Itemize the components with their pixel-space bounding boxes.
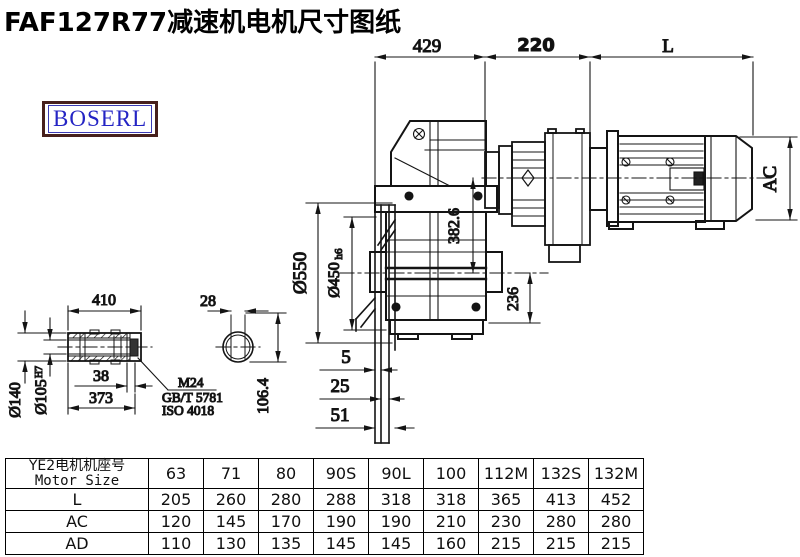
dim-5-label: 5 <box>341 347 351 368</box>
dim-1064-label: 106.4 <box>255 378 272 414</box>
dim-236-label: 236 <box>505 287 522 311</box>
dim-ac: AC <box>740 137 797 220</box>
gearbox-details <box>386 121 486 320</box>
dim-140-label: Ø140 <box>7 382 24 418</box>
row-label-AC: AC <box>6 511 149 533</box>
col-132S: 132S <box>534 459 589 489</box>
dim-429: 429 <box>413 36 442 57</box>
dim-offsets: 5 25 51 <box>316 347 414 428</box>
dim-373-label: 373 <box>89 390 113 407</box>
table-header-motor-size: YE2电机机座号 Motor Size <box>6 459 149 489</box>
centerlines <box>58 178 772 347</box>
table-row-AD: AD 110 130 135 145 145 160 215 215 215 <box>6 533 644 555</box>
table-row-L: L 205 260 280 288 318 318 365 413 452 <box>6 489 644 511</box>
col-90L: 90L <box>369 459 424 489</box>
dim-ac-label: AC <box>760 166 781 192</box>
dim-105-tol: H7 <box>34 366 45 378</box>
col-112M: 112M <box>479 459 534 489</box>
dim-450-tol: h6 <box>333 248 345 260</box>
dim-382-label: 382.6 <box>446 208 463 244</box>
dim-220: 220 <box>517 35 555 56</box>
dim-450-label: Ø450 <box>326 262 343 298</box>
row-label-AD: AD <box>6 533 149 555</box>
dim-38-label: 38 <box>93 368 109 385</box>
dim-51-label: 51 <box>331 405 350 426</box>
dim-L: L <box>662 36 674 57</box>
col-63: 63 <box>149 459 204 489</box>
flange-plate <box>356 205 395 443</box>
row-label-L: L <box>6 489 149 511</box>
col-100: 100 <box>424 459 479 489</box>
col-80: 80 <box>259 459 314 489</box>
col-71: 71 <box>204 459 259 489</box>
drawing-page: FAF127R77减速机电机尺寸图纸 BOSERL 42 <box>0 0 800 557</box>
dim-28-label: 28 <box>200 293 216 310</box>
dim-410-label: 410 <box>92 292 116 309</box>
dim-236: 236 <box>489 273 540 323</box>
col-90S: 90S <box>314 459 369 489</box>
dim-25-label: 25 <box>331 376 350 397</box>
callout-iso: ISO 4018 <box>162 403 214 418</box>
dim-382: 382.6 <box>446 178 473 273</box>
r77-stage <box>485 129 590 262</box>
table-row-AC: AC 120 145 170 190 190 210 230 280 280 <box>6 511 644 533</box>
table-header-row: YE2电机机座号 Motor Size 63 71 80 90S 90L 100… <box>6 459 644 489</box>
shaft-end-view <box>223 315 253 362</box>
callout-m24: M24 <box>178 375 204 390</box>
motor-size-table: YE2电机机座号 Motor Size 63 71 80 90S 90L 100… <box>5 458 644 555</box>
col-132M: 132M <box>589 459 644 489</box>
dimension-drawing: 429 220 L <box>0 0 800 460</box>
dim-550-label: Ø550 <box>290 252 311 294</box>
dim-105-label: Ø105 <box>33 379 50 415</box>
shaft-dims: 410 Ø140 Ø105 H7 38 373 <box>7 292 223 418</box>
